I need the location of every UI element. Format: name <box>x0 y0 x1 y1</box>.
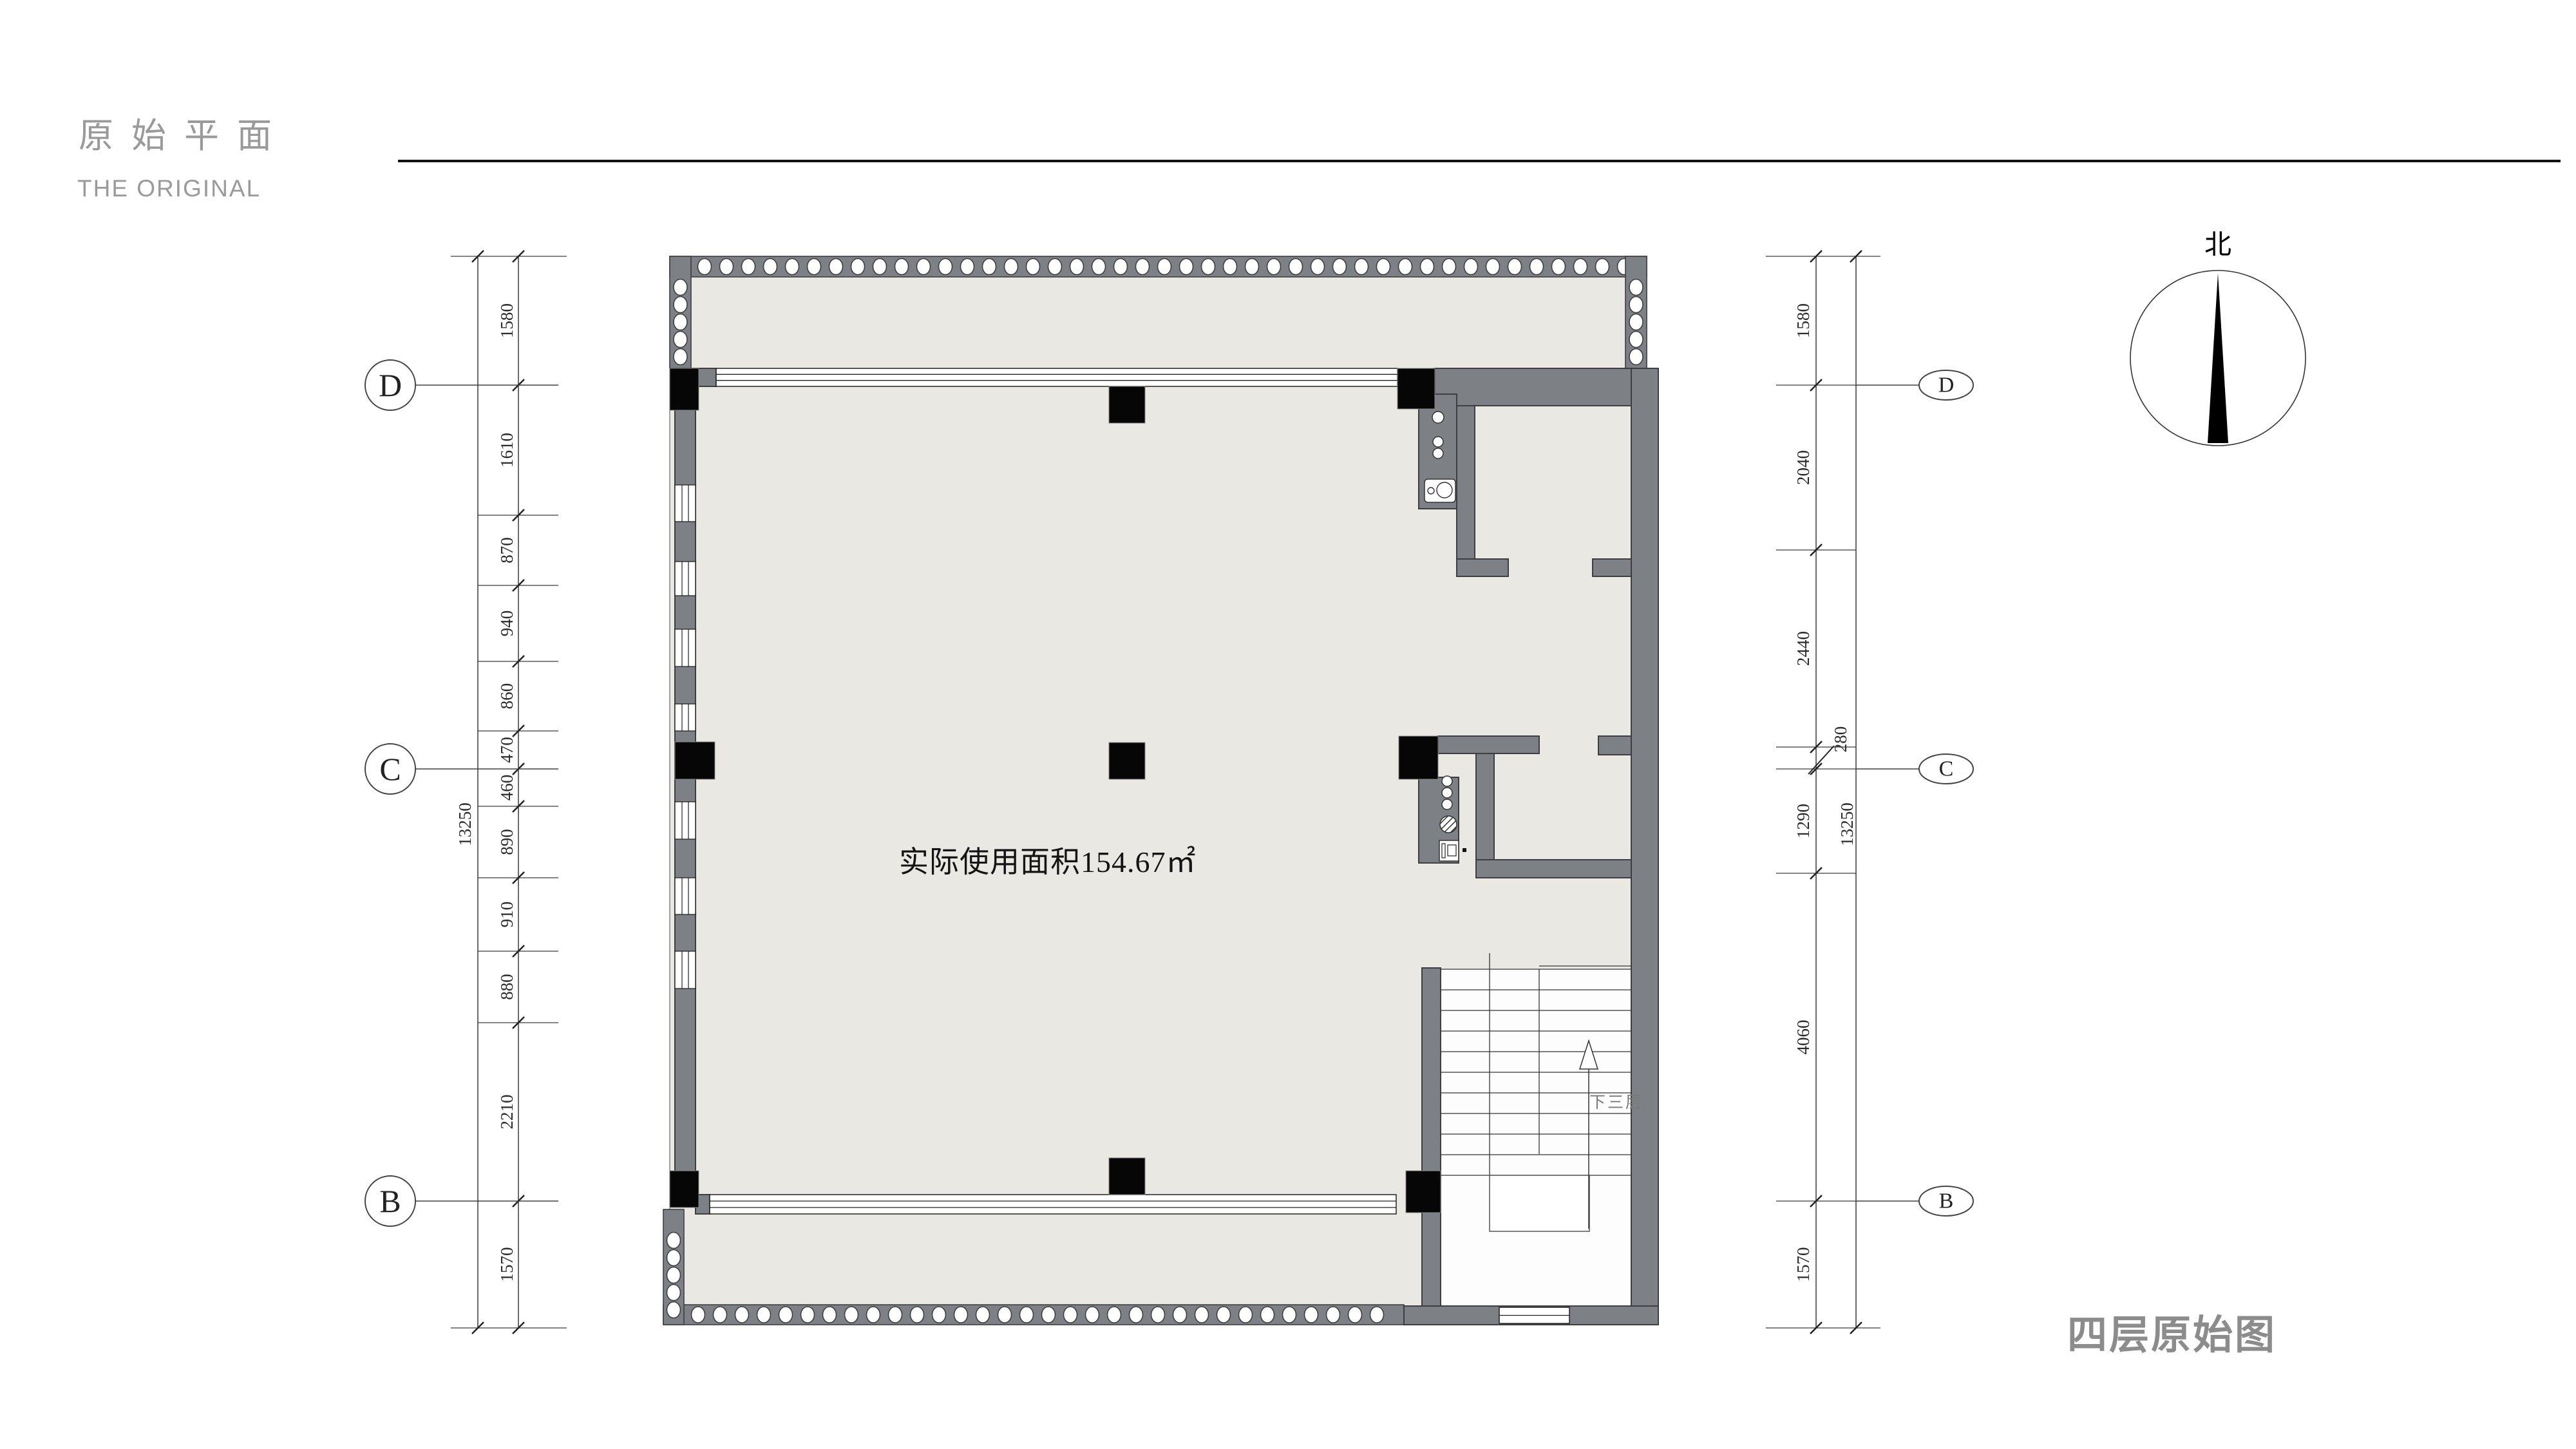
title-underline <box>398 160 2561 162</box>
dim-label: 1290 <box>1794 804 1813 838</box>
svg-text:C: C <box>1939 757 1954 781</box>
dim-label: 1570 <box>497 1247 516 1282</box>
north-needle <box>2208 273 2228 443</box>
svg-text:D: D <box>1938 374 1955 397</box>
dim-label: 890 <box>497 829 516 855</box>
svg-text:D: D <box>379 367 402 403</box>
usable-area-label: 实际使用面积154.67㎡ <box>899 838 1197 881</box>
north-arrow <box>2130 270 2306 446</box>
stair-direction-note: 下三层 <box>1589 1090 1643 1113</box>
svg-text:C: C <box>379 751 401 787</box>
dim-label: 940 <box>497 611 516 637</box>
dim-label: 1570 <box>1794 1247 1813 1282</box>
dim-label: 1580 <box>1794 303 1813 338</box>
page: { "header": { "title_cn": "原始平面", "subti… <box>0 0 2576 1449</box>
dim-label: 1610 <box>497 433 516 468</box>
floor <box>670 276 1647 1306</box>
drawing-title: 四层原始图 <box>2067 1302 2277 1360</box>
dim-label: 2210 <box>497 1095 516 1130</box>
dim-label: 910 <box>497 902 516 928</box>
page-title: 原始平面 <box>79 107 290 158</box>
dim-label: 4060 <box>1794 1020 1813 1055</box>
dim-label: 1580 <box>497 303 516 338</box>
dim-label: 880 <box>497 974 516 1000</box>
dim-label: 2040 <box>1794 450 1813 485</box>
dim-label: 13250 <box>455 802 475 846</box>
dim-label: 460 <box>497 775 516 801</box>
dim-label: 860 <box>497 683 516 710</box>
dim-label: 470 <box>497 737 516 763</box>
dimension-chain-left: 1580161087094086047046089091088022101570… <box>415 251 567 1334</box>
dim-label: 13250 <box>1837 802 1857 846</box>
svg-text:B: B <box>1939 1189 1954 1213</box>
floor-drain <box>1440 816 1457 833</box>
dim-label: 280 <box>1831 726 1850 753</box>
svg-text:B: B <box>379 1183 401 1219</box>
north-label: 北 <box>2197 223 2239 262</box>
page-subtitle: THE ORIGINAL <box>77 175 261 202</box>
dimension-chain-right: 15802040244028012904060157013250 <box>1766 251 1919 1334</box>
dim-label: 870 <box>497 537 516 563</box>
floor-plan-canvas: 1580161087094086047046089091088022101570… <box>0 0 2576 1449</box>
dim-label: 2440 <box>1794 631 1813 666</box>
